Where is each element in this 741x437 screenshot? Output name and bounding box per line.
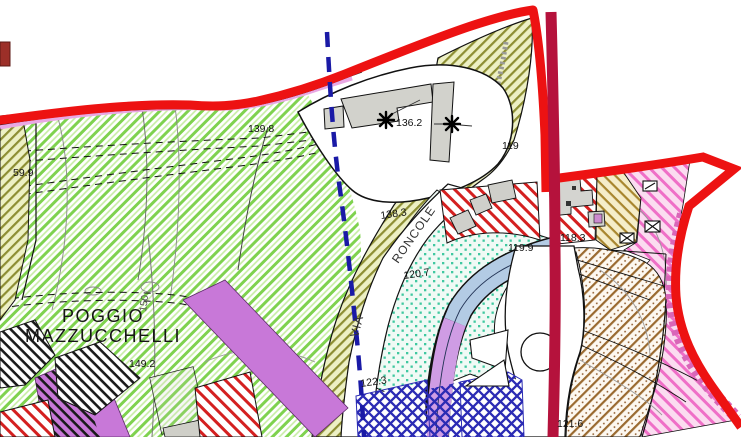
place-label-poggio: POGGIO [62, 306, 144, 326]
building-mark [572, 186, 576, 190]
spot-elevation: 119 [502, 140, 519, 152]
spot-elevation: 136.2 [396, 117, 422, 129]
annex-slash-symbol [643, 181, 657, 191]
blue-crosshatch-zone [424, 382, 462, 437]
spot-elevation: 59.9 [13, 167, 34, 179]
spot-elevation: 119.9 [508, 242, 534, 254]
tree-symbol [444, 116, 460, 132]
building-mark [566, 201, 571, 206]
place-label-mazzucchelli: MAZZUCCHELLI [25, 326, 181, 346]
main-road-crimson-band [551, 12, 555, 437]
zoning-map: POGGIO MAZZUCCHELLI RONCOLE VIA 59.9 139… [0, 0, 741, 437]
boundary-fragment [0, 42, 10, 66]
map-canvas[interactable]: POGGIO MAZZUCCHELLI RONCOLE VIA 59.9 139… [0, 0, 741, 437]
spot-elevation: 121.6 [557, 418, 583, 430]
annex-x-symbol [620, 233, 634, 243]
spot-elevation: 118.3 [560, 232, 586, 244]
tree-symbol [378, 112, 394, 128]
spot-elevation: 139.8 [248, 123, 274, 135]
annex-x-symbol [645, 221, 660, 232]
building-annex [594, 214, 602, 223]
spot-elevation: 149.2 [129, 358, 155, 370]
